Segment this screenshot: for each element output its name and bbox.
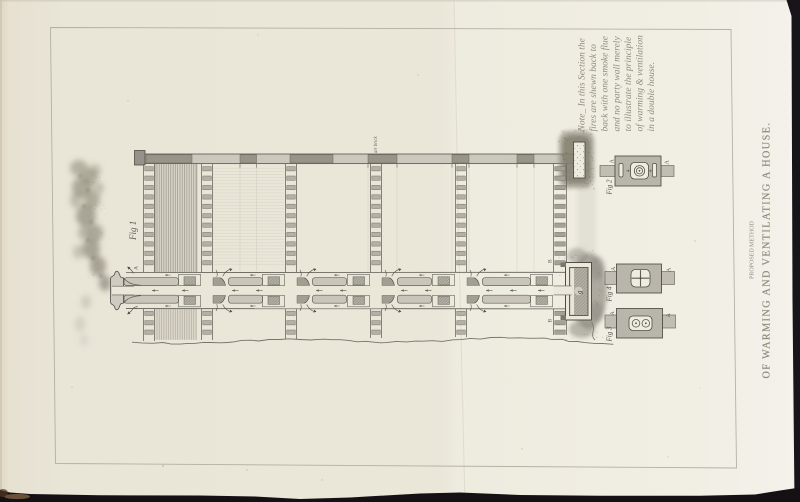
svg-text:PROPOSED METHOD: PROPOSED METHOD [750, 220, 756, 279]
svg-text:A: A [667, 267, 673, 272]
svg-text:A: A [610, 159, 616, 164]
svg-text:Note_ In this Section the: Note_ In this Section the [578, 38, 588, 132]
svg-text:A: A [666, 313, 672, 318]
svg-text:air brick: air brick [374, 135, 379, 153]
svg-text:A: A [134, 266, 140, 270]
svg-text:A: A [134, 306, 140, 310]
svg-text:Fig 1: Fig 1 [128, 221, 138, 241]
svg-text:B: B [548, 259, 554, 263]
svg-text:to illustrate the principle: to illustrate the principle [624, 37, 634, 132]
svg-text:A: A [610, 311, 616, 316]
svg-text:in a double house.: in a double house. [647, 62, 657, 132]
svg-text:back with one smoke flue: back with one smoke flue [600, 36, 611, 132]
svg-text:B: B [548, 319, 554, 323]
svg-text:of warming & ventilation: of warming & ventilation [635, 35, 646, 132]
svg-text:and no party wall merely: and no party wall merely [612, 36, 622, 132]
svg-text:OF WARMING AND VENTILATING A H: OF WARMING AND VENTILATING A HOUSE. [762, 122, 773, 379]
svg-text:fires are shewn back to: fires are shewn back to [588, 44, 599, 132]
svg-text:A: A [665, 160, 671, 165]
svg-text:Fig 4: Fig 4 [606, 286, 614, 302]
svg-text:Fig 3: Fig 3 [606, 326, 614, 342]
svg-text:Fig 2: Fig 2 [606, 179, 614, 195]
svg-text:g: g [576, 290, 584, 294]
svg-text:A: A [611, 266, 617, 271]
